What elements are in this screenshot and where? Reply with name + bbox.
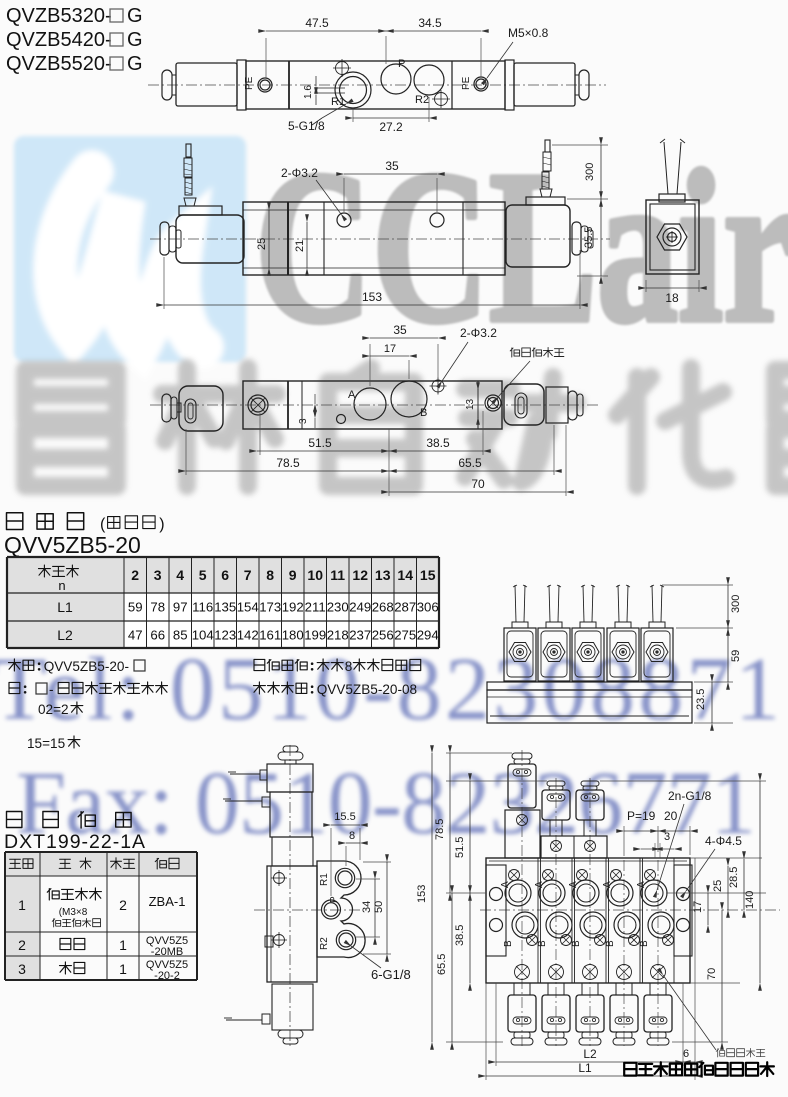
svg-text:CCLair: CCLair xyxy=(255,127,788,368)
svg-text:218: 218 xyxy=(327,628,349,643)
svg-text:18: 18 xyxy=(665,291,679,305)
svg-text:B: B xyxy=(639,940,650,947)
svg-text:L1: L1 xyxy=(578,1061,592,1075)
svg-text:L2: L2 xyxy=(57,627,73,643)
svg-text:104: 104 xyxy=(192,628,214,643)
svg-text:51.5: 51.5 xyxy=(308,436,332,450)
svg-text:35: 35 xyxy=(393,323,407,337)
svg-text:180: 180 xyxy=(282,628,304,643)
svg-text:P: P xyxy=(329,896,340,903)
svg-text:2: 2 xyxy=(119,897,127,913)
svg-text:287: 287 xyxy=(394,600,416,615)
svg-text:153: 153 xyxy=(362,290,382,304)
svg-text:161: 161 xyxy=(259,628,281,643)
svg-text:47.5: 47.5 xyxy=(305,16,329,30)
svg-text:25: 25 xyxy=(712,880,724,892)
svg-text:211: 211 xyxy=(305,600,326,615)
svg-text:294: 294 xyxy=(417,628,439,643)
svg-text:3: 3 xyxy=(18,961,26,977)
svg-text:QVV5ZB5-20-08: QVV5ZB5-20-08 xyxy=(317,682,417,697)
svg-text:1: 1 xyxy=(119,961,127,977)
svg-text:R2: R2 xyxy=(415,94,429,106)
svg-text:123: 123 xyxy=(214,628,236,643)
svg-text:B: B xyxy=(503,940,514,947)
svg-text:2: 2 xyxy=(131,567,139,583)
svg-text:A: A xyxy=(568,881,579,888)
svg-text:116: 116 xyxy=(192,600,213,615)
svg-text:78: 78 xyxy=(150,600,165,615)
svg-text:n: n xyxy=(58,578,65,593)
svg-text:70: 70 xyxy=(471,477,485,491)
svg-text:17: 17 xyxy=(692,901,704,913)
svg-text:256: 256 xyxy=(372,628,394,643)
svg-text:199: 199 xyxy=(304,628,326,643)
svg-text:65.5: 65.5 xyxy=(436,954,448,975)
svg-text:34: 34 xyxy=(361,901,373,913)
svg-text:PE: PE xyxy=(244,76,255,90)
svg-text:300: 300 xyxy=(584,163,596,181)
svg-text:300: 300 xyxy=(730,595,742,613)
svg-text:59: 59 xyxy=(730,650,742,662)
svg-text:R1: R1 xyxy=(319,873,330,886)
svg-text:59: 59 xyxy=(128,600,143,615)
svg-text:B: B xyxy=(537,940,548,947)
svg-text:L1: L1 xyxy=(57,599,73,615)
svg-text:3: 3 xyxy=(154,567,162,583)
svg-text:QVV5ZB5-20: QVV5ZB5-20 xyxy=(4,532,141,558)
svg-text:ZBA-1: ZBA-1 xyxy=(149,894,186,909)
svg-text:10: 10 xyxy=(307,567,323,583)
svg-text:6: 6 xyxy=(683,1048,689,1060)
svg-text:6-G1/8: 6-G1/8 xyxy=(371,967,411,982)
svg-text:5-G1/8: 5-G1/8 xyxy=(288,119,325,133)
svg-text:1.6: 1.6 xyxy=(303,85,314,99)
svg-text:35.5: 35.5 xyxy=(583,227,595,248)
svg-text:25: 25 xyxy=(256,238,268,250)
svg-text:1: 1 xyxy=(119,937,127,953)
svg-text:140: 140 xyxy=(744,891,756,909)
svg-text:14: 14 xyxy=(397,567,413,583)
svg-text:DXT199-22-1A: DXT199-22-1A xyxy=(4,831,146,853)
svg-text:237: 237 xyxy=(349,628,371,643)
svg-text:38.5: 38.5 xyxy=(454,925,466,946)
svg-text:R2: R2 xyxy=(319,937,330,950)
svg-text:G: G xyxy=(127,5,143,27)
svg-text:8: 8 xyxy=(345,659,353,674)
svg-text:B: B xyxy=(605,940,616,947)
svg-text:2-Φ3.2: 2-Φ3.2 xyxy=(460,326,497,340)
svg-text:35: 35 xyxy=(385,159,399,173)
svg-text:4: 4 xyxy=(176,567,184,583)
svg-text:23.5: 23.5 xyxy=(695,689,707,710)
svg-text:50: 50 xyxy=(373,901,385,913)
svg-text:9: 9 xyxy=(289,567,297,583)
svg-text:A: A xyxy=(348,389,356,401)
svg-text:QVZB5520-: QVZB5520- xyxy=(6,53,112,75)
svg-text:2n-G1/8: 2n-G1/8 xyxy=(668,789,712,803)
svg-text:142: 142 xyxy=(237,628,259,643)
svg-text:A: A xyxy=(534,881,545,888)
svg-text:3: 3 xyxy=(664,831,670,843)
svg-text:A: A xyxy=(500,881,511,888)
svg-text:78.5: 78.5 xyxy=(276,456,300,470)
svg-text:28.5: 28.5 xyxy=(728,867,740,888)
svg-text:275: 275 xyxy=(394,628,416,643)
svg-text:8: 8 xyxy=(349,830,355,842)
svg-text:51.5: 51.5 xyxy=(454,837,466,858)
svg-text:17: 17 xyxy=(384,343,396,355)
svg-text:2: 2 xyxy=(18,937,26,953)
svg-text:G: G xyxy=(127,53,143,75)
svg-text:154: 154 xyxy=(237,600,259,615)
svg-text:-: - xyxy=(49,682,54,697)
svg-text:5: 5 xyxy=(199,567,207,583)
svg-text:78.5: 78.5 xyxy=(434,819,446,840)
svg-text:A: A xyxy=(602,881,613,888)
svg-text:-20-2: -20-2 xyxy=(154,970,180,982)
svg-text:QVV5ZB5-20-: QVV5ZB5-20- xyxy=(44,659,129,674)
svg-text:2-Φ3.2: 2-Φ3.2 xyxy=(281,166,318,180)
svg-text:306: 306 xyxy=(417,600,439,615)
svg-text:15=15: 15=15 xyxy=(27,736,65,751)
svg-text:38.5: 38.5 xyxy=(426,436,450,450)
svg-text:PE: PE xyxy=(461,76,472,90)
svg-text:173: 173 xyxy=(259,600,281,615)
svg-text:66: 66 xyxy=(150,628,165,643)
svg-text:135: 135 xyxy=(214,600,236,615)
svg-text:47: 47 xyxy=(128,628,143,643)
svg-text:12: 12 xyxy=(352,567,368,583)
svg-text:230: 230 xyxy=(327,600,349,615)
svg-text:268: 268 xyxy=(372,600,394,615)
svg-text:M5×0.8: M5×0.8 xyxy=(508,26,549,40)
svg-text:85: 85 xyxy=(173,628,188,643)
svg-text:P: P xyxy=(398,58,405,70)
svg-text:3: 3 xyxy=(298,418,309,424)
svg-text:13: 13 xyxy=(375,567,391,583)
svg-text:02=2: 02=2 xyxy=(38,702,69,717)
svg-text:13: 13 xyxy=(465,398,476,410)
svg-text:B: B xyxy=(571,940,582,947)
svg-text:(M3×8: (M3×8 xyxy=(59,907,88,918)
svg-text:P=19: P=19 xyxy=(627,809,656,823)
svg-text:B: B xyxy=(420,407,427,419)
svg-text:15.5: 15.5 xyxy=(334,811,355,823)
svg-text:6: 6 xyxy=(221,567,229,583)
svg-text:65.5: 65.5 xyxy=(458,456,482,470)
svg-text:34.5: 34.5 xyxy=(418,16,442,30)
svg-text:97: 97 xyxy=(173,600,188,615)
svg-text:4-Φ4.5: 4-Φ4.5 xyxy=(705,834,742,848)
svg-text:): ) xyxy=(159,516,164,533)
svg-text:G: G xyxy=(127,29,143,51)
svg-text:(: ( xyxy=(100,516,106,533)
svg-text:L2: L2 xyxy=(583,1047,597,1061)
svg-text:15: 15 xyxy=(420,567,436,583)
svg-text:A: A xyxy=(636,881,647,888)
svg-text:1: 1 xyxy=(18,897,26,913)
svg-text:-20MB: -20MB xyxy=(151,946,183,958)
svg-text:QVZB5320-: QVZB5320- xyxy=(6,5,112,27)
svg-text:192: 192 xyxy=(282,600,304,615)
svg-text:249: 249 xyxy=(349,600,371,615)
svg-text:QVZB5420-: QVZB5420- xyxy=(6,29,112,51)
svg-text:11: 11 xyxy=(330,567,345,583)
svg-text:20: 20 xyxy=(664,809,678,823)
svg-text:70: 70 xyxy=(706,968,718,980)
svg-text:153: 153 xyxy=(416,885,428,903)
svg-text:8: 8 xyxy=(266,567,274,583)
svg-text:27.2: 27.2 xyxy=(379,120,403,134)
svg-text:7: 7 xyxy=(244,567,252,583)
svg-text:21: 21 xyxy=(294,240,306,252)
